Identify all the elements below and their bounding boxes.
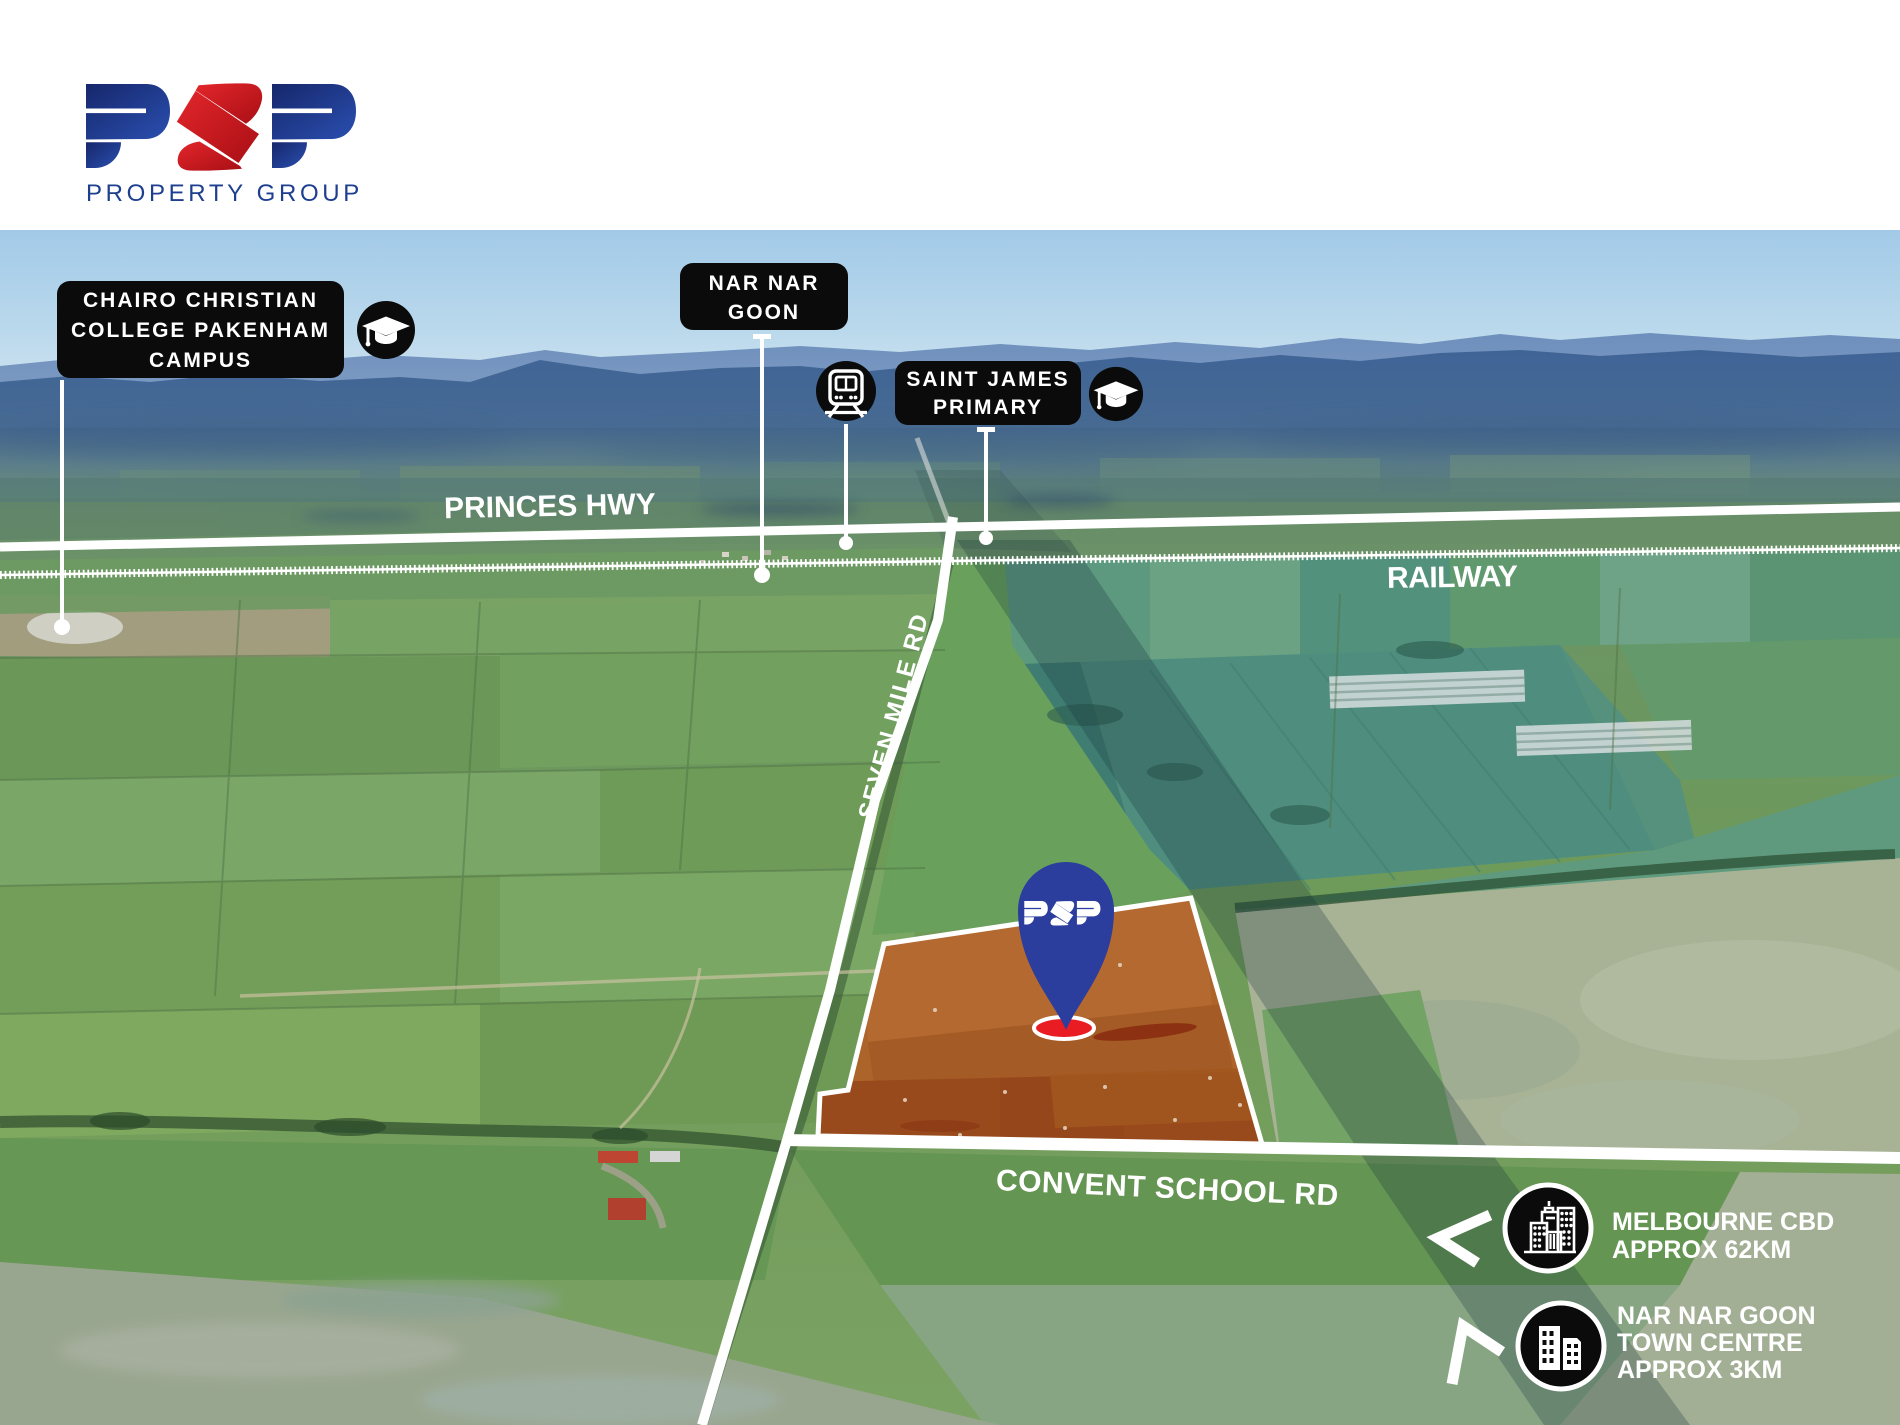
svg-text:PROPERTY GROUP: PROPERTY GROUP xyxy=(86,180,363,207)
